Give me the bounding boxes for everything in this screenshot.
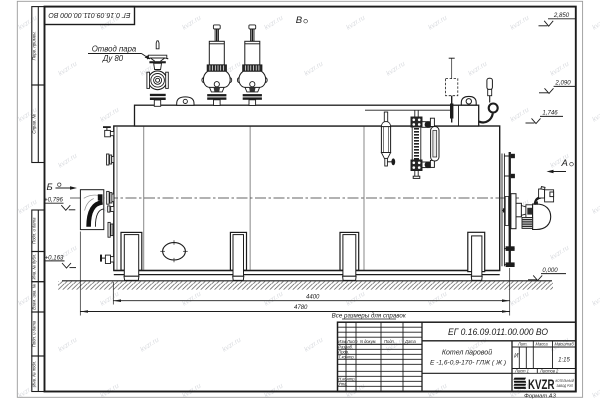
svg-text:Е -1,6-0,9-170- ГЛЖ ( Ж ): Е -1,6-0,9-170- ГЛЖ ( Ж ) (430, 360, 506, 367)
svg-text:В: В (296, 15, 303, 26)
svg-text:Перв. примен.: Перв. примен. (31, 31, 36, 60)
svg-text:1:15: 1:15 (558, 358, 570, 364)
svg-text:Т.контр.: Т.контр. (338, 354, 355, 359)
svg-text:Масштаб: Масштаб (555, 342, 575, 347)
svg-text:Подп.: Подп. (384, 339, 395, 344)
svg-text:+0,163: +0,163 (45, 254, 64, 261)
svg-text:Инв. № подл.: Инв. № подл. (31, 361, 36, 387)
svg-text:И: И (514, 354, 519, 360)
svg-text:Взам. инв. №: Взам. инв. № (31, 283, 36, 309)
svg-text:А: А (561, 158, 568, 169)
svg-text:ЗАВОД РЭП: ЗАВОД РЭП (557, 384, 574, 388)
svg-text:Лит.: Лит. (517, 342, 528, 347)
svg-text:4780: 4780 (294, 305, 308, 311)
svg-text:+0,796: +0,796 (44, 197, 63, 204)
svg-text:N докум.: N докум. (360, 339, 377, 344)
svg-text:Изм.Лист: Изм.Лист (338, 339, 358, 344)
svg-text:КОТЕЛЬНЫЙ: КОТЕЛЬНЫЙ (556, 379, 575, 383)
svg-text:ЕГ 0.16.09.011.00.000 ВО: ЕГ 0.16.09.011.00.000 ВО (48, 11, 131, 18)
svg-text:2,850: 2,850 (553, 12, 570, 19)
svg-text:Подп. и дата: Подп. и дата (31, 217, 36, 244)
svg-text:Ду 80: Ду 80 (102, 54, 124, 63)
svg-text:Листов 2: Листов 2 (539, 368, 559, 373)
svg-text:2,090: 2,090 (554, 80, 571, 87)
svg-text:Утв.: Утв. (338, 381, 347, 386)
svg-text:Масса: Масса (536, 342, 549, 347)
svg-text:Все размеры для справок: Все размеры для справок (332, 313, 407, 320)
svg-text:Справ. №: Справ. № (31, 113, 36, 133)
svg-text:Инв. № дубл.: Инв. № дубл. (31, 254, 36, 280)
svg-text:Б: Б (47, 182, 53, 193)
svg-text:KVZR: KVZR (528, 377, 555, 392)
svg-text:Котел паровой: Котел паровой (442, 349, 492, 357)
svg-text:Формат А3: Формат А3 (524, 394, 556, 400)
svg-text:Дата: Дата (404, 339, 417, 344)
svg-text:Подп. и дата: Подп. и дата (31, 320, 36, 347)
svg-text:Лист 1: Лист 1 (514, 368, 529, 373)
svg-text:Отвод пара: Отвод пара (92, 45, 137, 54)
svg-text:1,746: 1,746 (542, 110, 558, 117)
svg-text:4400: 4400 (306, 294, 320, 300)
svg-text:ЕГ 0.16.09.011.00.000 ВО: ЕГ 0.16.09.011.00.000 ВО (448, 327, 548, 337)
svg-text:0,000: 0,000 (542, 267, 558, 274)
